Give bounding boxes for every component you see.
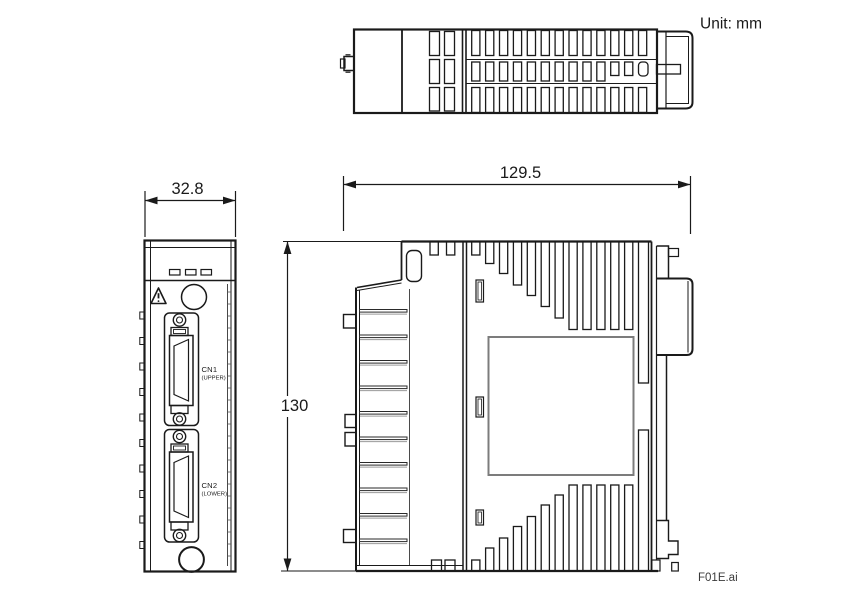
top-view [341,30,693,114]
arrowhead-left [344,181,357,189]
bottom-mount-tab [657,521,679,559]
drawing-canvas: CN1 (UPPER) CN2 (LOWER) [0,0,860,593]
depth-dimension-value: 129.5 [500,164,541,182]
width-dimension-value: 32.8 [171,180,203,198]
latch-pin [657,65,681,75]
side-left-bumps [344,315,357,543]
cn1-label: CN1 [202,365,218,374]
cn2-label: CN2 [202,481,218,490]
top-hook-detail [407,251,422,282]
top-left-connector-tab [341,55,355,72]
top-body-outline [354,30,657,114]
cn2-connector [165,430,199,543]
led-indicator [201,270,212,276]
side-cooling-fins [360,310,408,544]
front-round-hole [182,285,207,310]
front-view [140,241,236,572]
cn2-position-label: (LOWER) [202,492,228,498]
arrowhead-up [284,242,292,255]
arrowhead-left [145,197,158,205]
side-bottom-vent-slots [432,430,649,571]
side-view [344,242,693,572]
arrowhead-right [223,197,236,205]
cn1-connector [165,313,199,426]
top-right-latch [639,62,681,76]
bottom-thumb-screw [179,547,204,572]
led-indicators [170,270,212,276]
height-dimension: 130 [281,242,402,572]
warning-triangle-icon [151,288,166,304]
top-right-connector-block [657,32,693,109]
side-back-plate [652,242,693,572]
depth-dimension: 129.5 [344,164,691,234]
top-mount-tab [657,246,669,279]
arrowhead-right [678,181,691,189]
front-right-ticks [228,292,232,556]
side-small-vents [476,280,484,525]
led-indicator [170,270,181,276]
dimension-drawing-page: CN1 (UPPER) CN2 (LOWER) [0,0,860,593]
file-label: F01E.ai [698,572,738,584]
arrowhead-down [284,559,292,572]
module-label-area [489,337,634,475]
side-connector-block [657,279,693,356]
unit-label: Unit: mm [700,16,762,33]
height-dimension-value: 130 [281,397,309,415]
cn1-position-label: (UPPER) [202,376,226,382]
led-indicator [186,270,197,276]
width-dimension: 32.8 [145,180,236,237]
